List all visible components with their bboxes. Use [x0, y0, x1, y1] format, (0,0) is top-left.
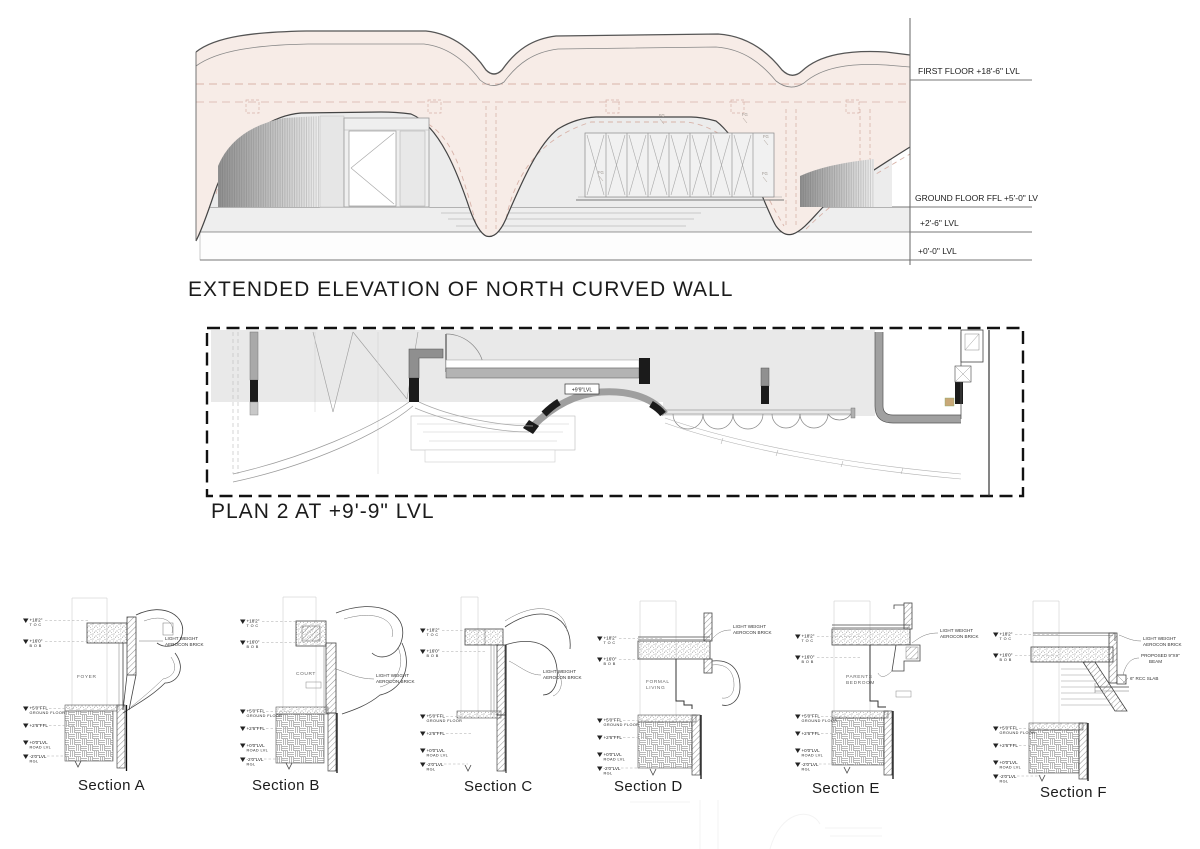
ffl-level-value: +5'0"FFL [427, 714, 446, 719]
brick-note-line1: LIGHT WEIGHT [733, 624, 766, 629]
road-level-sub: ROAD LVL [30, 746, 52, 750]
toc-level-sub: T O C [604, 641, 616, 645]
road-level-sub: ROAD LVL [427, 754, 449, 758]
bob-level-value: +16'0" [30, 639, 43, 644]
road-level-value: +0'0"LVL [604, 752, 623, 757]
bob-level-value: +16'0" [1000, 653, 1013, 658]
brick-note-line1: LIGHT WEIGHT [165, 636, 198, 641]
ffl-level-sub: GROUND FLOOR [604, 723, 640, 727]
rgl-level-sub: RGL [604, 772, 613, 776]
ffl26-level-value: +2'6"FFL [30, 723, 49, 728]
road-level-value: +0'0"LVL [802, 748, 821, 753]
curved-wall-profile [505, 609, 570, 696]
beam-step-profile [878, 645, 920, 677]
plan-2-drawing: +9'9"LVL [203, 322, 1037, 504]
ffl-level-sub: GROUND FLOOR [1000, 731, 1036, 735]
ffl-level-sub: GROUND FLOOR [247, 714, 283, 718]
level-datum-lines: FIRST FLOOR +18'-6" LVL GROUND FLOOR FFL… [910, 18, 1038, 265]
toc-level-sub: T O C [247, 624, 259, 628]
lower-level-markers: +5'0"FFL GROUND FLOOR +2'6"FFL +0'0"LVL … [420, 714, 472, 772]
ffl-level-value: +5'0"FFL [1000, 726, 1019, 731]
ffl26-level-value: +2'6"FFL [427, 731, 446, 736]
ffl-level-value: +5'0"FFL [604, 718, 623, 723]
section-d-drawing: FORMAL LIVING LIGHT WEIGHT AEROCON BRICK… [592, 583, 797, 783]
room-label-formal: FORMAL [646, 679, 670, 685]
upper-level-markers: +18'2" T O C +16'0" B O B [23, 618, 89, 649]
toc-level-sub: T O C [802, 639, 814, 643]
brick-note-line2: AEROCON BRICK [733, 630, 772, 635]
toc-level-sub: T O C [30, 623, 42, 627]
road-level-value: +0'0"LVL [1000, 760, 1019, 765]
rgl-level-sub: RGL [802, 768, 811, 772]
room-label-court: COURT [296, 671, 316, 677]
curved-wall-profile [336, 607, 406, 714]
section-c-drawing: LIGHT WEIGHT AEROCON BRICK +18'2" T O C … [413, 583, 618, 783]
bob-level-value: +16'0" [427, 649, 440, 654]
bob-level-sub: B O B [427, 654, 439, 658]
section-a-drawing: FOYER LIGHT WEIGHT AEROCON BRICK +18'2" … [15, 583, 220, 783]
bob-level-sub: B O B [247, 645, 259, 649]
section-e-drawing: PARENTS BEDROOM LIGHT WEIGHT AEROCON BRI… [788, 583, 993, 783]
ffl26-level-value: +2'6"FFL [1000, 743, 1019, 748]
toc-level-sub: T O C [427, 633, 439, 637]
brick-note-line2: AEROCON BRICK [376, 679, 415, 684]
rgl-level-sub: RGL [1000, 780, 1009, 784]
brick-note-line1: LIGHT WEIGHT [1143, 636, 1176, 641]
section-c-title: Section C [464, 778, 533, 795]
road-level-value: +0'0"LVL [30, 740, 49, 745]
brick-note-line2: AEROCON BRICK [940, 634, 979, 639]
road-level-sub: ROAD LVL [604, 758, 626, 762]
ffl-level-sub: GROUND FLOOR [427, 719, 463, 723]
brick-note-line2: AEROCON BRICK [543, 675, 582, 680]
rgl-level-value: -2'0"LVL [427, 762, 444, 767]
toc-level-value: +18'2" [1000, 632, 1013, 637]
bob-level-sub: B O B [1000, 658, 1012, 662]
rgl-level-sub: RGL [30, 760, 39, 764]
ffl-level-sub: GROUND FLOOR [30, 711, 66, 715]
north-curved-wall-elevation: FG FG FG FG FG FIRST FLOOR +18'-6" LVL G… [186, 14, 1038, 266]
bob-level-value: +16'0" [604, 657, 617, 662]
ffl26-level-value: +2'6"FFL [802, 731, 821, 736]
rgl-level-value: -2'0"LVL [247, 757, 264, 762]
rgl-level-value: -2'0"LVL [802, 762, 819, 767]
first-floor-level-label: FIRST FLOOR +18'-6" LVL [918, 66, 1020, 76]
ground-floor-level-label: GROUND FLOOR FFL +5'-0" LVL [915, 193, 1038, 203]
fg-label: FG [742, 112, 748, 117]
toc-level-value: +18'2" [604, 636, 617, 641]
beam-note-line1: PROPOSED 9"X9" [1141, 653, 1180, 658]
bob-level-sub: B O B [30, 644, 42, 648]
ffl26-level-value: +2'6"FFL [247, 726, 266, 731]
bob-level-sub: B O B [802, 660, 814, 664]
toc-level-value: +18'2" [30, 618, 43, 623]
toc-level-value: +18'2" [427, 628, 440, 633]
rcc-slab-note: 6" RCC SLAB [1130, 676, 1158, 681]
road-level-label: +0'-0" LVL [918, 246, 957, 256]
road-level-value: +0'0"LVL [247, 743, 266, 748]
faint-ghost-drawing [620, 798, 900, 849]
section-f-title: Section F [1040, 784, 1107, 801]
road-level-value: +0'0"LVL [427, 748, 446, 753]
ffl-level-value: +5'0"FFL [247, 709, 266, 714]
elevation-title: EXTENDED ELEVATION OF NORTH CURVED WALL [188, 278, 733, 302]
plan-title: PLAN 2 AT +9'-9" LVL [211, 500, 435, 524]
brick-note-line2: AEROCON BRICK [165, 642, 204, 647]
plan-level-tag: +9'9"LVL [572, 388, 593, 394]
road-level-sub: ROAD LVL [1000, 766, 1022, 770]
plinth-level-label: +2'-6" LVL [920, 218, 959, 228]
section-a-title: Section A [78, 777, 145, 794]
ffl-level-value: +5'0"FFL [802, 714, 821, 719]
rgl-level-value: -2'0"LVL [30, 754, 47, 759]
toc-level-value: +18'2" [247, 619, 260, 624]
rgl-level-value: -2'0"LVL [604, 766, 621, 771]
brick-note-line1: LIGHT WEIGHT [543, 669, 576, 674]
room-label-living: LIVING [646, 685, 665, 691]
beam-note-line2: BEAM [1149, 659, 1162, 664]
road-level-sub: ROAD LVL [802, 754, 824, 758]
fg-label: FG [598, 170, 604, 175]
brick-note-line1: LIGHT WEIGHT [376, 673, 409, 678]
bob-level-sub: B O B [604, 662, 616, 666]
section-b-drawing: COURT LIGHT WEIGHT AEROCON BRICK +18'2" … [228, 583, 433, 783]
ffl26-level-value: +2'6"FFL [604, 735, 623, 740]
rgl-level-value: -2'0"LVL [1000, 774, 1017, 779]
ffl-level-sub: GROUND FLOOR [802, 719, 838, 723]
road-level-sub: ROAD LVL [247, 749, 269, 753]
fg-label: FG [763, 134, 769, 139]
rgl-level-sub: RGL [247, 763, 256, 767]
brick-note-line2: AEROCON BRICK [1143, 642, 1182, 647]
section-b-title: Section B [252, 777, 320, 794]
ffl-level-value: +5'0"FFL [30, 706, 49, 711]
section-e-title: Section E [812, 780, 880, 797]
brick-note-line1: LIGHT WEIGHT [940, 628, 973, 633]
entry-door [344, 118, 429, 207]
toc-level-sub: T O C [1000, 637, 1012, 641]
rgl-level-sub: RGL [427, 768, 436, 772]
section-d-title: Section D [614, 778, 683, 795]
fg-label: FG [659, 113, 665, 118]
fg-label: FG [762, 171, 768, 176]
bob-level-value: +16'0" [247, 640, 260, 645]
section-f-drawing: LIGHT WEIGHT AEROCON BRICK PROPOSED 9"X9… [983, 583, 1200, 793]
toc-level-value: +18'2" [802, 634, 815, 639]
curved-wall-profile [712, 661, 740, 706]
room-label-foyer: FOYER [77, 674, 97, 680]
bob-level-value: +16'0" [802, 655, 815, 660]
room-label-bedroom: BEDROOM [846, 680, 875, 686]
room-label-parents: PARENTS [846, 674, 873, 680]
